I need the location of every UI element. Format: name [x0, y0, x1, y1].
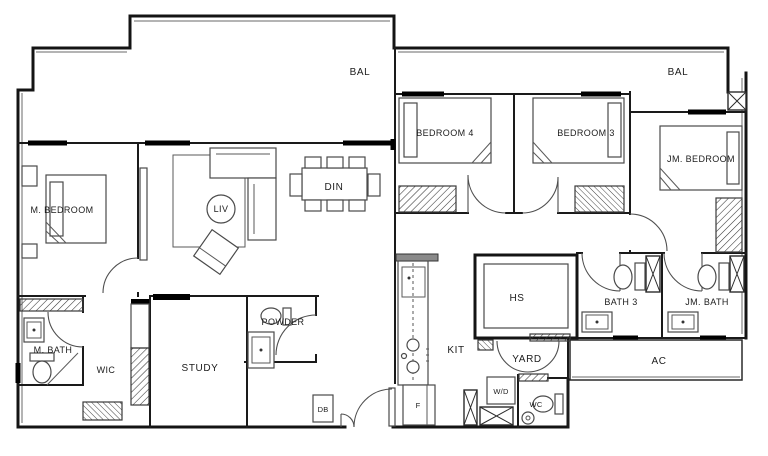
dining-armchair — [368, 174, 380, 196]
jm-toilet-tank — [719, 263, 729, 290]
label-db: DB — [318, 405, 329, 414]
study-sliding-door — [153, 294, 190, 300]
household-shelter — [475, 255, 577, 350]
wic-furniture — [83, 299, 149, 420]
hob-knob — [402, 354, 407, 359]
label-jm-bedroom: JM. BEDROOM — [667, 154, 735, 164]
label-bedroom3: BEDROOM 3 — [557, 128, 615, 138]
jm-wardrobe — [716, 198, 742, 252]
bed4-pillow — [404, 103, 417, 157]
label-m-bath: M. BATH — [34, 345, 73, 355]
bedside-table — [22, 166, 37, 186]
wardrobe3 — [575, 186, 624, 212]
m-bath-toilet — [33, 361, 51, 383]
label-hs: HS — [509, 293, 524, 304]
hob-burner — [407, 339, 419, 351]
jm-bedroom-furniture — [660, 126, 742, 252]
wardrobe4 — [399, 186, 456, 212]
label-ac: AC — [651, 356, 666, 367]
coffee-table — [194, 230, 239, 275]
label-powder: POWDER — [262, 317, 305, 327]
counter-cap — [396, 254, 438, 261]
shaft-yard — [480, 407, 513, 425]
dining-armchair — [290, 174, 302, 196]
sofa-back — [210, 148, 276, 178]
m-bath-fixtures — [20, 299, 83, 385]
label-yard: YARD — [512, 354, 541, 365]
bedroom4-furniture — [399, 98, 491, 212]
vanity-counter — [20, 299, 83, 311]
bedroom3-furniture — [533, 98, 624, 212]
dining-chair — [305, 200, 321, 211]
kitchen-fixtures — [396, 254, 438, 425]
bath3-toilet-tank — [635, 263, 645, 290]
dining-chair — [305, 157, 321, 168]
floor-plan-svg: BAL BAL M. BEDROOM LIV DIN BEDROOM 4 BED… — [0, 0, 768, 456]
label-bal-left: BAL — [350, 67, 371, 78]
label-wic: WIC — [97, 365, 116, 375]
label-bath3: BATH 3 — [604, 297, 637, 307]
living-dining-furniture — [173, 148, 380, 274]
hob-burner — [407, 361, 419, 373]
label-liv: LIV — [214, 204, 229, 214]
dining-chair — [327, 157, 343, 168]
bath3-toilet — [614, 265, 632, 289]
label-bedroom4: BEDROOM 4 — [416, 128, 474, 138]
wc-basin — [522, 412, 534, 424]
tv-console — [140, 168, 147, 260]
column-x — [728, 92, 746, 110]
label-m-bedroom: M. BEDROOM — [30, 205, 93, 215]
floor-plan-page: BAL BAL M. BEDROOM LIV DIN BEDROOM 4 BED… — [0, 0, 768, 456]
label-jm-bath: JM. BATH — [685, 297, 729, 307]
label-study: STUDY — [182, 363, 219, 374]
duct-bath3 — [646, 256, 660, 292]
duct-kitchen — [464, 390, 477, 425]
duct-jm-bath — [730, 256, 744, 292]
sofa-chaise — [248, 178, 276, 240]
wc-toilet-tank — [555, 394, 563, 414]
dining-chair — [327, 200, 343, 211]
label-kit: KIT — [447, 345, 464, 356]
bedside-table — [22, 244, 37, 258]
label-fridge: F — [416, 401, 421, 410]
label-bal-right: BAL — [668, 67, 689, 78]
dining-chair — [349, 157, 365, 168]
label-wd: W/D — [493, 387, 509, 396]
label-wc: WC — [530, 400, 543, 409]
label-din: DIN — [324, 182, 343, 193]
dining-chair — [349, 200, 365, 211]
jm-toilet — [698, 265, 716, 289]
